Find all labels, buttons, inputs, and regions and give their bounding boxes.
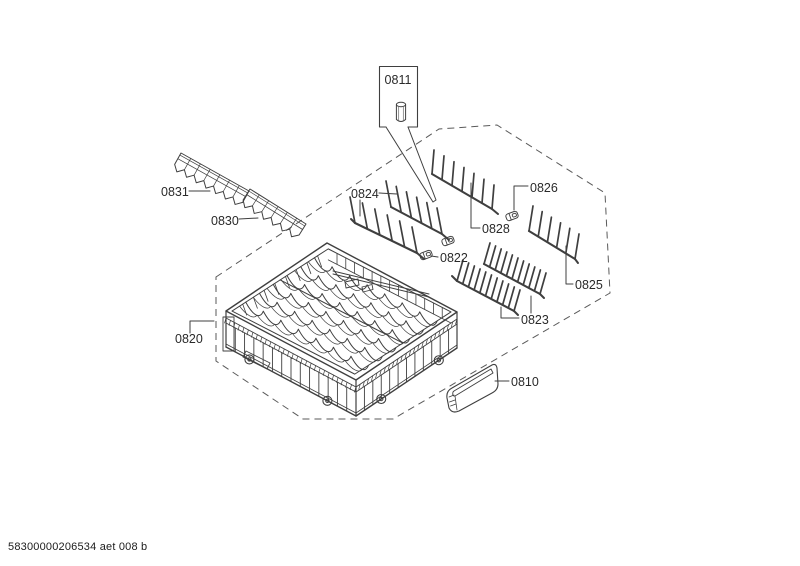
part-label-0822: 0822 [440,251,468,265]
tine-row-0828 [432,150,498,214]
pin-part-drawing [396,102,405,121]
clip-0822 [441,236,455,247]
document-code: 58300000206534 aet 008 b [8,541,147,553]
part-label-0824: 0824 [351,187,379,201]
part-0820-basket [223,243,457,416]
part-label-0820: 0820 [175,332,203,346]
clip-0826 [505,211,519,222]
tine-rows [350,150,579,315]
part-label-0811: 0811 [385,73,412,87]
part-label-0825: 0825 [575,278,603,292]
callout-wedge-pointer [386,127,436,202]
tine-row-0824 [350,197,424,259]
part-label-0828: 0828 [482,222,510,236]
tine-row-0823 [452,260,520,315]
tine-row-0825 [529,206,579,263]
part-labels: 0811 0831 0830 0824 0828 0826 0822 0825 … [161,73,603,389]
parts-diagram-canvas: 0811 0831 0830 0824 0828 0826 0822 0825 … [0,0,800,566]
part-0831-0830-strips [175,153,306,237]
part-label-0830: 0830 [211,214,239,228]
part-label-0810: 0810 [511,375,539,389]
clip-0822 [419,250,433,261]
part-label-0823: 0823 [521,313,549,327]
diagram-page: 0811 0831 0830 0824 0828 0826 0822 0825 … [0,0,800,566]
tine-row-0824 [386,181,449,240]
part-label-0826: 0826 [530,181,558,195]
part-label-0831: 0831 [161,185,189,199]
part-0810-tray [447,364,498,412]
strip-0830 [243,189,306,237]
